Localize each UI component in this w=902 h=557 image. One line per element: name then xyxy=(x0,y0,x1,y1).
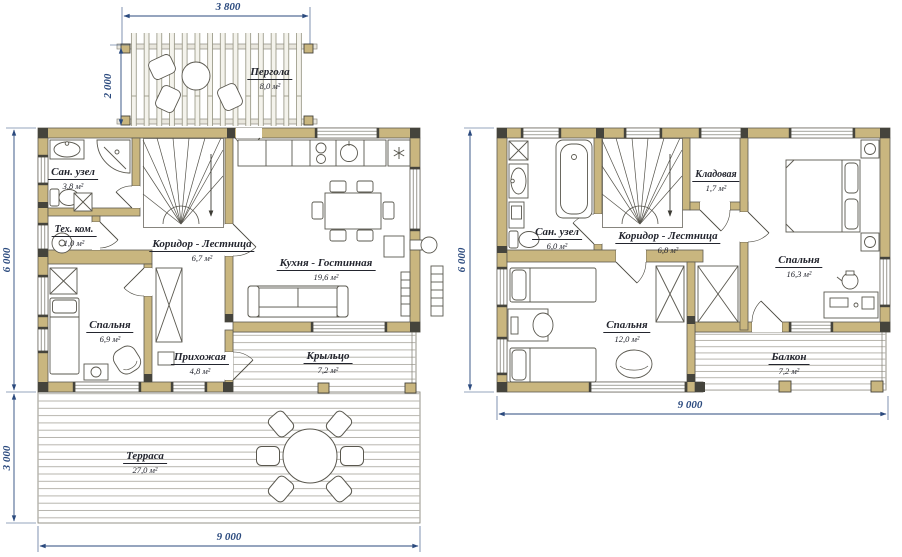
room-label-corridor-1: Коридор - Лестница6,7 м² xyxy=(149,234,254,263)
dim-house-depth-2: 6 000 xyxy=(456,248,468,273)
dim-house-width-2: 9 000 xyxy=(678,399,703,411)
plan1-terrace xyxy=(38,392,420,523)
plan1-stairs xyxy=(143,138,224,228)
room-label-tech: Тех. ком.1,0 м² xyxy=(52,219,97,248)
room-label-pergola: Пергола8,0 м² xyxy=(247,62,292,91)
plan2-bedroom-large-furniture xyxy=(786,140,879,318)
room-label-bedroom-large: Спальня16,3 м² xyxy=(775,250,822,279)
room-label-corridor-2: Коридор - Лестница6,8 м² xyxy=(615,226,720,255)
room-label-san-uzel-2: Сан. узел6,0 м² xyxy=(532,222,582,251)
room-label-kitchen: Кухня - Гостинная19,6 м² xyxy=(277,253,376,282)
dim-pergola-depth: 2 000 xyxy=(102,74,114,99)
room-label-bedroom-1: Спальня6,9 м² xyxy=(86,315,133,344)
room-label-storage: Кладовая1,7 м² xyxy=(692,164,739,193)
room-label-san-uzel-1: Сан. узел3,8 м² xyxy=(48,162,98,191)
dim-house-width-1: 9 000 xyxy=(217,531,242,543)
dim-pergola-width: 3 800 xyxy=(216,1,241,13)
plan2-stairs xyxy=(602,138,683,228)
dim-terrace-depth: 3 000 xyxy=(1,446,13,471)
room-label-bedroom-small: Спальня12,0 м² xyxy=(603,315,650,344)
room-label-balcony: Балкон7,2 м² xyxy=(769,347,810,376)
room-label-porch: Крыльцо7,2 м² xyxy=(304,346,353,375)
room-label-terrace: Терраса27,0 м² xyxy=(123,446,167,475)
room-label-hallway: Прихожая4,8 м² xyxy=(171,347,229,376)
dim-house-depth-1: 6 000 xyxy=(1,248,13,273)
floor-plan-sheet: Пергола8,0 м² Сан. узел3,8 м² Тех. ком.1… xyxy=(0,0,902,557)
